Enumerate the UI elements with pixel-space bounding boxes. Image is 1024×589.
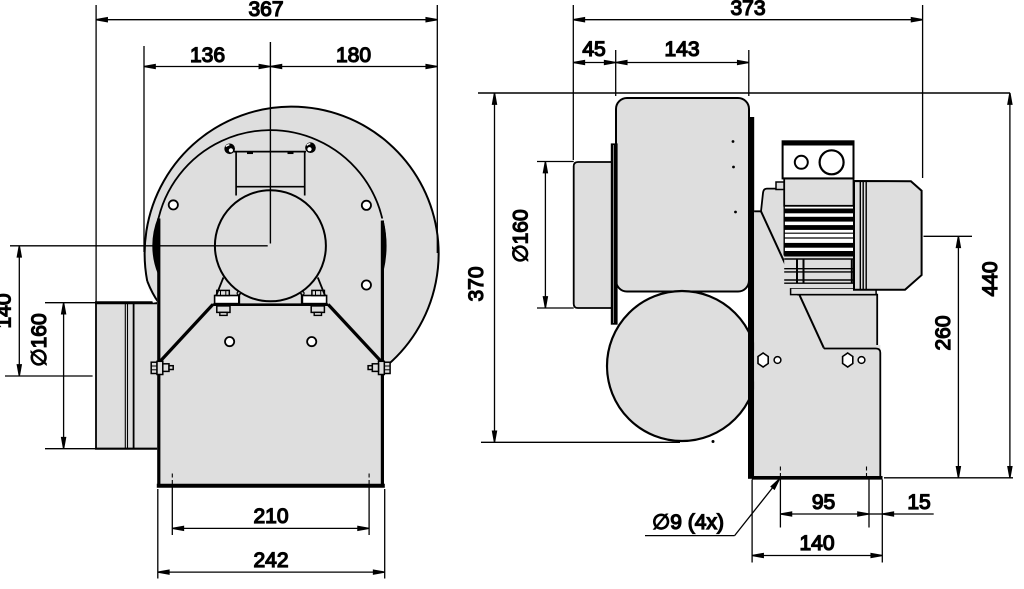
svg-text:45: 45 bbox=[582, 38, 605, 61]
svg-text:180: 180 bbox=[336, 44, 371, 67]
svg-text:15: 15 bbox=[907, 491, 930, 514]
svg-text:136: 136 bbox=[190, 44, 225, 67]
svg-text:140: 140 bbox=[0, 293, 16, 328]
svg-text:367: 367 bbox=[248, 0, 283, 21]
svg-text:∅160: ∅160 bbox=[28, 313, 51, 366]
svg-text:95: 95 bbox=[812, 491, 835, 514]
svg-text:∅9 (4x): ∅9 (4x) bbox=[652, 511, 724, 534]
svg-text:∅160: ∅160 bbox=[510, 209, 533, 262]
svg-text:373: 373 bbox=[730, 0, 765, 20]
svg-text:370: 370 bbox=[465, 266, 488, 301]
svg-text:210: 210 bbox=[253, 505, 288, 528]
svg-text:260: 260 bbox=[932, 315, 955, 350]
svg-text:143: 143 bbox=[664, 38, 699, 61]
svg-text:140: 140 bbox=[799, 532, 834, 555]
svg-text:440: 440 bbox=[979, 261, 1002, 296]
svg-text:242: 242 bbox=[253, 549, 288, 572]
